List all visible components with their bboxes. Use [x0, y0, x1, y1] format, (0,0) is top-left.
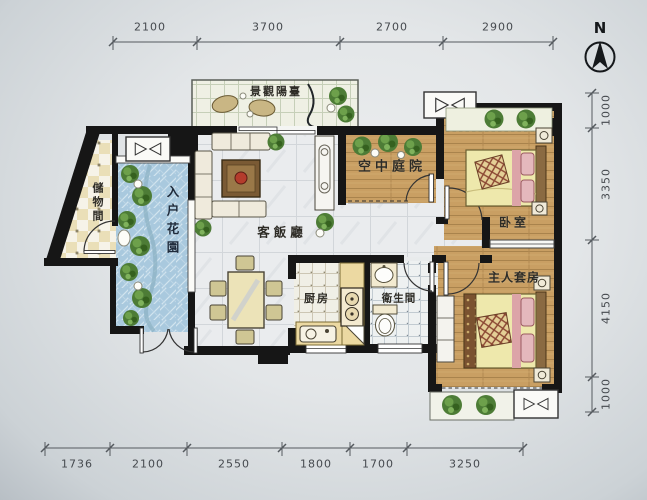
- room-label-storage: 儲物間: [89, 182, 105, 224]
- dim-right-2: 3350: [600, 168, 613, 200]
- compass: [586, 41, 615, 72]
- dim-bottom-2: 2100: [132, 458, 164, 471]
- nightstand: [534, 368, 550, 382]
- dim-top-4: 2900: [482, 21, 514, 34]
- nightstand: [536, 128, 552, 143]
- dim-bottom-5: 1700: [362, 458, 394, 471]
- bathroom-door-leaf: [430, 262, 434, 292]
- room-label-balcony: 景觀陽臺: [250, 83, 302, 99]
- courtyard-door-leaf: [429, 174, 434, 202]
- room-label-bathroom: 衛生間: [382, 291, 417, 306]
- dim-bottom-1: 1736: [61, 458, 93, 471]
- master-door-leaf: [444, 262, 448, 295]
- tv-cabinet: [315, 136, 334, 210]
- ac-platform-1: [126, 137, 170, 161]
- nightstand: [532, 202, 547, 215]
- bedroom-headboard: [536, 146, 546, 210]
- master-pillow: [521, 298, 534, 326]
- master-wardrobe: [437, 296, 454, 362]
- entry-door-arc-left: [143, 329, 168, 352]
- floor-plan-drawing: [0, 0, 647, 500]
- bedroom-blanket-band: [512, 150, 521, 206]
- dim-right-1: 1000: [600, 94, 613, 126]
- dim-top-3: 2700: [376, 21, 408, 34]
- floor-plan-photo: N 2100 3700 2700 2900 1000 3350 4150 100…: [0, 0, 647, 500]
- dim-bottom-6: 3250: [449, 458, 481, 471]
- north-label: N: [594, 19, 607, 37]
- master-headboard: [536, 292, 546, 372]
- master-bed-runner: [464, 294, 476, 368]
- room-label-living-dining: 客飯廳: [257, 222, 307, 241]
- entry-door-leaf-right: [194, 328, 197, 353]
- dim-bottom-3: 2550: [218, 458, 250, 471]
- dim-ticks-top: [109, 36, 557, 50]
- ac-platform-3: [514, 390, 558, 418]
- garden-living-sill: [188, 200, 195, 292]
- entry-door-leaf-left: [140, 328, 143, 353]
- bedroom-pillow: [521, 153, 534, 175]
- dim-bottom-4: 1800: [300, 458, 332, 471]
- dim-right-3: 4150: [600, 292, 613, 324]
- toilet-tank: [373, 305, 397, 314]
- master-quilt: [477, 313, 512, 348]
- balcony-slider-door: [239, 127, 277, 131]
- dim-ticks-bottom: [41, 442, 527, 456]
- room-label-kitchen: 厨房: [304, 290, 330, 306]
- master-blanket-band: [512, 294, 521, 368]
- dim-top-2: 3700: [252, 21, 284, 34]
- dim-top-1: 2100: [134, 21, 166, 34]
- room-label-bedroom: 卧室: [499, 214, 529, 231]
- north-arrow-icon: [592, 41, 608, 69]
- sofa-top: [212, 133, 270, 150]
- dim-right-4: 1000: [600, 378, 613, 410]
- room-label-master-suite: 主人套房: [488, 269, 540, 286]
- kitchen-sink: [300, 326, 336, 342]
- sofa-left: [195, 151, 212, 219]
- bedroom-door-leaf: [445, 186, 449, 219]
- room-label-entry-garden: 入户花園: [163, 185, 182, 259]
- room-label-sky-courtyard: 空中庭院: [358, 156, 426, 175]
- toilet-bowl: [376, 314, 395, 336]
